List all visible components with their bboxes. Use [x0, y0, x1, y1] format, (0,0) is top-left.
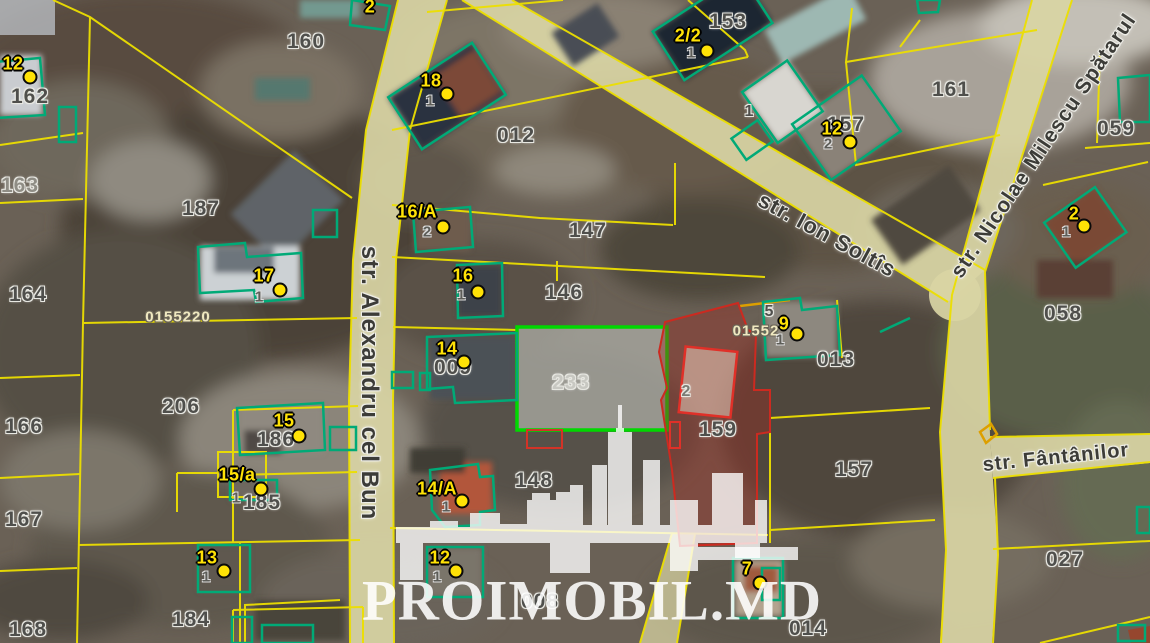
address-dot-marker[interactable]	[254, 482, 269, 497]
address-dot-marker[interactable]	[1077, 219, 1092, 234]
parcel-label: 1	[745, 103, 754, 121]
parcel-label: 166	[5, 415, 43, 439]
parcel-label: 163	[1, 174, 39, 198]
address-sub-number: 1	[687, 45, 695, 62]
satellite-map[interactable]: str. Alexandru cel Bun str. Ion Soltîs s…	[0, 0, 1150, 643]
address-marker[interactable]: 17	[253, 266, 274, 287]
parcel-label: 161	[932, 78, 970, 102]
address-sub-number: 1	[442, 499, 450, 516]
address-sub-number: 1	[1062, 224, 1070, 241]
address-dot-marker[interactable]	[471, 285, 486, 300]
parcel-label: 2	[682, 383, 691, 401]
address-dot-marker[interactable]	[23, 70, 38, 85]
parcel-label: 153	[709, 10, 747, 34]
address-dot-marker[interactable]	[436, 220, 451, 235]
parcel-label: 058	[1044, 302, 1082, 326]
address-sub-number: 1	[776, 332, 784, 349]
parcel-label: 168	[9, 618, 47, 642]
parcel-label: 187	[182, 197, 220, 221]
parcel-label: 167	[5, 508, 43, 532]
parcel-label: 184	[172, 608, 210, 632]
cadastral-code: 01552	[733, 323, 780, 340]
address-marker[interactable]: 12	[2, 54, 23, 75]
address-sub-number: 1	[255, 289, 263, 306]
parcel-label: 148	[515, 469, 553, 493]
address-sub-number: 2	[423, 224, 431, 241]
cadastral-code: 0155220	[145, 309, 210, 326]
address-marker[interactable]: 12	[429, 548, 450, 569]
address-dot-marker[interactable]	[700, 44, 715, 59]
parcel-label: 146	[545, 281, 583, 305]
address-marker[interactable]: 16/A	[397, 202, 437, 223]
address-dot-marker[interactable]	[790, 327, 805, 342]
watermark-text: PROIMOBIL.MD	[362, 569, 822, 634]
parcel-label: 013	[817, 348, 855, 372]
parcel-label: 147	[569, 219, 607, 243]
address-sub-number: 1	[202, 569, 210, 586]
address-marker[interactable]: 16	[452, 266, 473, 287]
address-marker[interactable]: 2/2	[675, 26, 702, 47]
street-label-alexandru-cel-bun: str. Alexandru cel Bun	[355, 246, 383, 521]
parcel-label: 206	[162, 395, 200, 419]
parcel-label: 059	[1097, 117, 1135, 141]
address-marker[interactable]: 15/a	[218, 465, 255, 486]
address-sub-number: 1	[232, 490, 240, 507]
address-sub-number: 1	[457, 287, 465, 304]
address-sub-number: 2	[824, 136, 832, 153]
address-marker[interactable]: 14	[436, 339, 457, 360]
parcel-label: 159	[699, 418, 737, 442]
parcel-label: 157	[835, 458, 873, 482]
parcel-label: 162	[11, 85, 49, 109]
parcel-label: 233	[552, 371, 590, 395]
address-dot-marker[interactable]	[440, 87, 455, 102]
parcel-label: 164	[9, 283, 47, 307]
address-dot-marker[interactable]	[217, 564, 232, 579]
address-marker[interactable]: 2	[365, 0, 376, 18]
address-dot-marker[interactable]	[455, 494, 470, 509]
selected-parcel-233[interactable]	[517, 327, 667, 430]
parcel-label: 160	[287, 30, 325, 54]
building	[0, 0, 55, 35]
parcel-label: 027	[1046, 548, 1084, 572]
parcel-label: 186	[257, 428, 295, 452]
parcel-label: 012	[497, 124, 535, 148]
address-marker[interactable]: 18	[420, 71, 441, 92]
address-marker[interactable]: 13	[196, 548, 217, 569]
address-dot-marker[interactable]	[843, 135, 858, 150]
address-sub-number: 1	[426, 93, 434, 110]
parcel-label: 5	[765, 303, 774, 321]
address-dot-marker[interactable]	[457, 355, 472, 370]
address-marker[interactable]: 15	[273, 411, 294, 432]
address-dot-marker[interactable]	[292, 429, 307, 444]
address-dot-marker[interactable]	[273, 283, 288, 298]
address-marker[interactable]: 14/A	[417, 479, 457, 500]
